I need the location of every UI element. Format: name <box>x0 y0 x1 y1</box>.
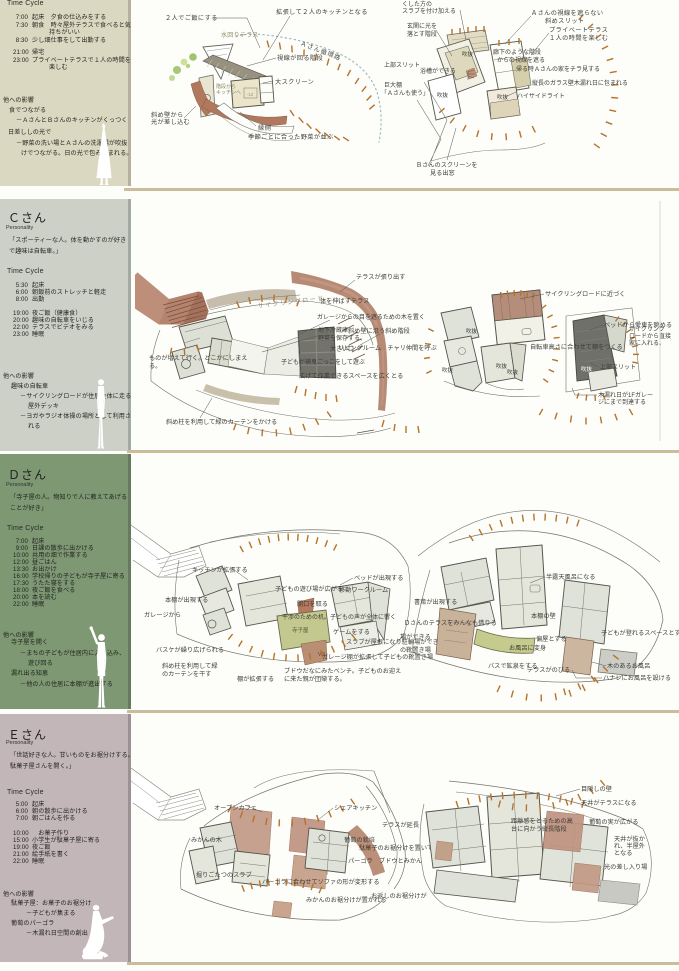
svg-text:プライベートテラス: プライベートテラス <box>549 27 608 34</box>
svg-text:となる: となる <box>614 850 632 857</box>
svg-text:落とす階段: 落とす階段 <box>407 30 437 38</box>
svg-text:る。: る。 <box>149 363 161 370</box>
svg-text:･12: ･12 <box>246 92 254 97</box>
svg-text:斜め柱を利用して緑のカーテンをかける: 斜め柱を利用して緑のカーテンをかける <box>166 418 277 426</box>
svg-text:縁側: 縁側 <box>258 124 271 132</box>
svg-text:の靴置き場: の靴置き場 <box>400 646 431 654</box>
svg-text:干渉のための机。子どもの声が全体に響く: 干渉のための机。子どもの声が全体に響く <box>282 613 396 621</box>
svg-text:移動ワークルーム: 移動ワークルーム <box>339 586 388 594</box>
svg-text:地下冷蔵庫: 地下冷蔵庫 <box>318 326 348 334</box>
svg-text:上部スリット: 上部スリット <box>600 363 636 371</box>
svg-text:ジにまで到達する: ジにまで到達する <box>598 398 646 406</box>
svg-text:距離感をとるための高: 距離感をとるための高 <box>511 817 573 825</box>
svg-text:１人の時間を楽しむ: １人の時間を楽しむ <box>549 34 608 42</box>
svg-text:階段から: 階段から <box>216 83 236 90</box>
svg-text:子どもの遊び場が広がる: 子どもの遊び場が広がる <box>275 585 343 593</box>
svg-text:木のあるお風呂: 木のあるお風呂 <box>607 662 650 670</box>
svg-text:廊下のような階段: 廊下のような階段 <box>493 48 541 56</box>
svg-text:吹抜: 吹抜 <box>442 366 454 374</box>
svg-text:吹抜: 吹抜 <box>497 93 509 101</box>
svg-text:子どもが捕鬼ごっこをして遊ぶ: 子どもが捕鬼ごっこをして遊ぶ <box>281 358 365 366</box>
svg-text:吹抜: 吹抜 <box>496 362 508 370</box>
svg-text:オープンカフェ: オープンカフェ <box>214 805 257 812</box>
svg-text:巨大棚: 巨大棚 <box>384 81 402 89</box>
svg-text:葡萄の実が広がる: 葡萄の実が広がる <box>589 818 639 826</box>
svg-text:Ｂさんのスクリーンを: Ｂさんのスクリーンを <box>416 162 478 169</box>
svg-text:テラスが延長: テラスが延長 <box>382 821 419 829</box>
svg-text:半露天風呂になる: 半露天風呂になる <box>546 573 596 581</box>
svg-text:ハナレにお風呂を設ける: ハナレにお風呂を設ける <box>603 674 671 682</box>
svg-text:開口を取る: 開口を取る <box>297 601 328 608</box>
svg-text:見る出窓: 見る出窓 <box>430 169 455 177</box>
svg-text:スラブを付け加える: スラブを付け加える <box>402 7 456 15</box>
svg-text:季節ごとに合った野菜が並ぶ: 季節ごとに合った野菜が並ぶ <box>248 133 334 141</box>
svg-text:キッチンへ: キッチンへ <box>216 90 241 96</box>
svg-text:斜め柱を利用して緑: 斜め柱を利用して緑 <box>162 662 218 670</box>
svg-text:テラスが張り出す: テラスが張り出す <box>356 273 405 281</box>
svg-text:広げて作業できるスペースを広くとる: 広げて作業できるスペースを広くとる <box>299 372 403 380</box>
svg-text:野菜を保存する。: 野菜を保存する。 <box>318 334 366 342</box>
svg-text:書斎が出現する: 書斎が出現する <box>414 598 457 606</box>
svg-text:掘りごたつのスラブ: 掘りごたつのスラブ <box>196 871 252 879</box>
svg-text:に来た親が団欒する。: に来た親が団欒する。 <box>284 675 346 683</box>
svg-text:ベッドが出現する: ベッドが出現する <box>354 574 404 582</box>
svg-text:みかんの木: みかんの木 <box>191 836 222 844</box>
svg-text:子どもが登れるスペースとする: 子どもが登れるスペースとする <box>601 629 679 637</box>
svg-text:吹抜: 吹抜 <box>437 91 449 99</box>
svg-text:パーゴラ ブドウとみかん: パーゴラ ブドウとみかん <box>348 857 422 865</box>
svg-text:くした方の: くした方の <box>402 0 432 8</box>
svg-text:視線が回る階段: 視線が回る階段 <box>277 54 323 62</box>
svg-text:パーゴラに合わせてソファの形が変形する: パーゴラに合わせてソファの形が変形する <box>262 878 380 886</box>
svg-text:ブドウだなにみたベンチ。子どものお迎え: ブドウだなにみたベンチ。子どものお迎え <box>284 667 401 675</box>
svg-text:のカーテンを干す: のカーテンを干す <box>162 671 212 678</box>
svg-text:玄関に光を: 玄関に光を <box>407 22 437 30</box>
svg-text:体を伸ばすテラス: 体を伸ばすテラス <box>320 297 369 305</box>
svg-text:本棚が出現する: 本棚が出現する <box>165 596 208 604</box>
svg-text:場ができる: 場ができる <box>400 633 431 641</box>
svg-text:バスケが繰り広げられる: バスケが繰り広げられる <box>156 646 224 654</box>
svg-text:ハイサイドライト: ハイサイドライト <box>517 93 565 100</box>
svg-text:吹抜: 吹抜 <box>462 50 474 58</box>
svg-text:浴槽ができる: 浴槽ができる <box>420 67 456 75</box>
svg-text:拡張して２人のキッチンとなる: 拡張して２人のキッチンとなる <box>276 8 368 16</box>
svg-text:吹抜: 吹抜 <box>466 327 478 335</box>
svg-text:お風呂に変身: お風呂に変身 <box>509 644 546 652</box>
svg-text:ガレージから: ガレージから <box>144 611 181 619</box>
svg-text:キッチンが拡張する: キッチンが拡張する <box>192 566 248 574</box>
svg-text:上部スリット: 上部スリット <box>384 61 420 69</box>
svg-text:水回りテラス: 水回りテラス <box>221 31 259 39</box>
svg-text:からの視線を遮る: からの視線を遮る <box>497 56 545 64</box>
svg-text:れ、半屋外: れ、半屋外 <box>614 842 645 850</box>
svg-text:光が差し込む: 光が差し込む <box>151 118 190 126</box>
svg-text:縦長のガラス壁木漏れ日に包まれる: 縦長のガラス壁木漏れ日に包まれる <box>532 79 628 87</box>
svg-text:ものが増えて行く。どこかにしまえ: ものが増えて行く。どこかにしまえ <box>149 354 248 362</box>
svg-text:テラスがのびる: テラスがのびる <box>527 666 570 674</box>
svg-text:本棚の壁: 本棚の壁 <box>531 612 556 620</box>
svg-text:斜めスリット: 斜めスリット <box>545 17 585 25</box>
svg-text:木漏れ日が1Fガレー: 木漏れ日が1Fガレー <box>598 391 653 399</box>
svg-text:偏屋とする: 偏屋とする <box>536 635 567 643</box>
svg-text:斜め壁から: 斜め壁から <box>151 111 183 119</box>
svg-text:Ａさんの視線を遮らない: Ａさんの視線を遮らない <box>531 9 603 17</box>
svg-text:自転車高さに合わせて棚をつくる: 自転車高さに合わせて棚をつくる <box>530 343 623 351</box>
svg-text:シェアキッチン: シェアキッチン <box>334 805 377 812</box>
svg-text:Ｄさんのテラスをみんなも借りる: Ｄさんのテラスをみんなも借りる <box>404 619 497 627</box>
svg-text:大スクリーン: 大スクリーン <box>275 78 314 86</box>
svg-text:帰る時Ａさんの家をチラ見する: 帰る時Ａさんの家をチラ見する <box>516 65 600 73</box>
svg-text:目隠しの壁: 目隠しの壁 <box>581 785 612 793</box>
svg-text:寺子屋: 寺子屋 <box>292 626 309 634</box>
svg-text:サイクリングロードに近づく: サイクリングロードに近づく <box>545 290 625 298</box>
svg-text:天井が抜か: 天井が抜か <box>614 835 645 843</box>
svg-text:ガレージ棚が拡張して子どもの靴置き場: ガレージ棚が拡張して子どもの靴置き場 <box>322 653 433 661</box>
svg-text:天井がテラスになる: 天井がテラスになる <box>581 799 637 807</box>
svg-text:ガレージからの目を遮るための木を置く: ガレージからの目を遮るための木を置く <box>317 313 425 321</box>
svg-text:吹抜: 吹抜 <box>507 368 519 376</box>
svg-text:台に向かう縦長階段: 台に向かう縦長階段 <box>511 825 567 833</box>
svg-text:ロードから直接: ロードから直接 <box>629 332 671 340</box>
svg-text:２人でご飯にする: ２人でご飯にする <box>165 14 218 22</box>
svg-text:吹抜: 吹抜 <box>581 365 593 373</box>
svg-text:光の差し入り場: 光の差し入り場 <box>604 863 647 871</box>
svg-text:斜め壁に沿う斜め階段: 斜め壁に沿う斜め階段 <box>348 327 410 335</box>
svg-text:お返しのお裾分けが: お返しのお裾分けが <box>371 892 427 900</box>
svg-text:葡萄の栽培: 葡萄の栽培 <box>344 836 375 844</box>
svg-text:ゲームをする: ゲームをする <box>333 628 370 636</box>
svg-text:「Ａさんも使う」: 「Ａさんも使う」 <box>381 89 429 97</box>
svg-text:棚が拡張する: 棚が拡張する <box>237 675 274 683</box>
svg-text:リビングルーム チャリ仲間を呼ぶ: リビングルーム チャリ仲間を呼ぶ <box>338 344 437 352</box>
